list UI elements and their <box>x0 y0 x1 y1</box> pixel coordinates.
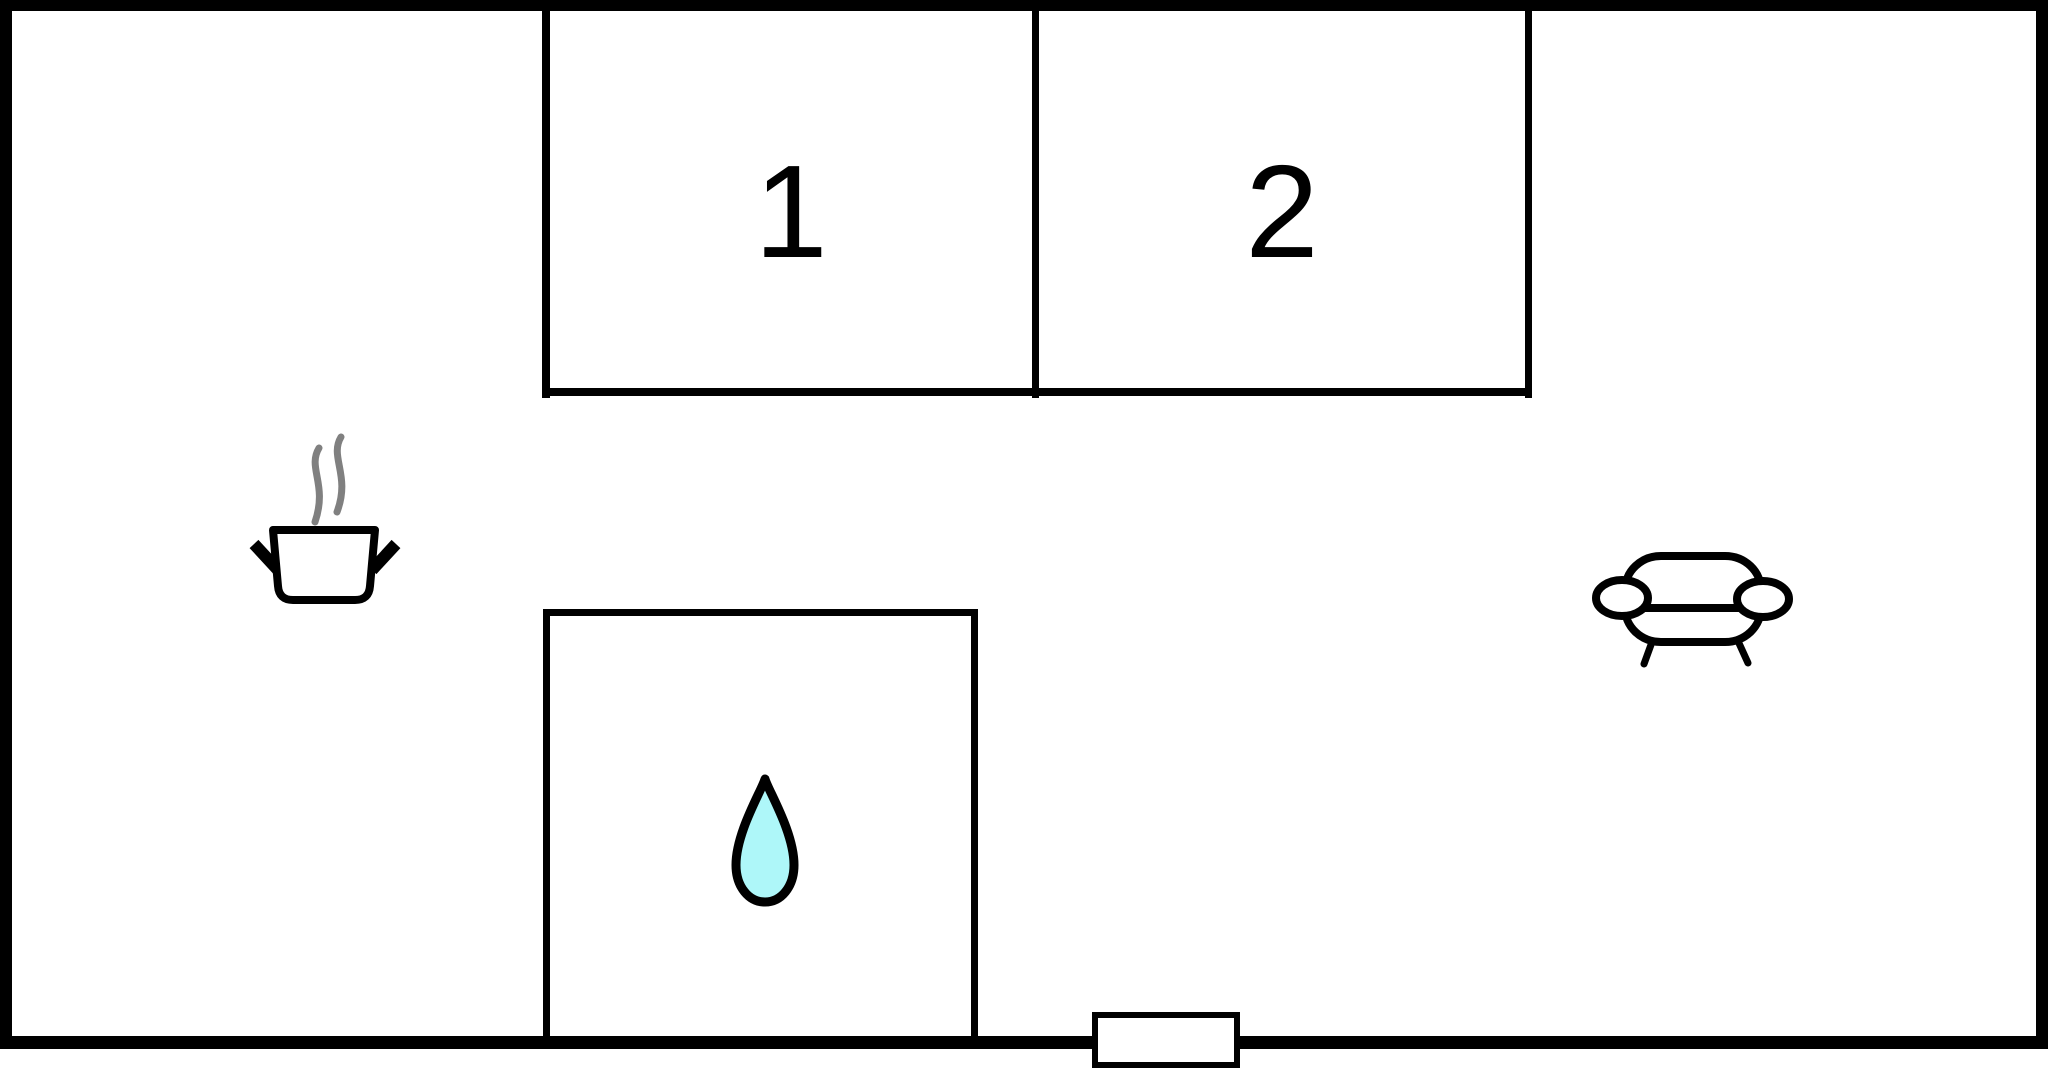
room-2-label: 2 <box>1039 146 1525 278</box>
room-1-label: 1 <box>550 146 1032 278</box>
outer-wall-top <box>0 0 2048 11</box>
room-1-left-wall <box>542 11 550 398</box>
water-drop-icon <box>722 770 808 912</box>
bathroom-top-wall <box>543 609 978 616</box>
bathroom-right-wall <box>971 609 978 1036</box>
room-2-right-wall <box>1525 11 1532 398</box>
outer-wall-left <box>0 0 12 1049</box>
bathroom-left-wall <box>543 609 550 1036</box>
floor-plan: 1 2 <box>0 0 2048 1070</box>
outer-wall-bottom <box>0 1036 2048 1049</box>
rooms-bottom-wall <box>542 388 1532 396</box>
rooms-divider-wall <box>1032 11 1039 398</box>
outer-wall-right <box>2036 0 2048 1049</box>
steam-pot-icon <box>240 428 410 608</box>
sofa-icon <box>1588 546 1798 671</box>
door-marker <box>1092 1012 1240 1068</box>
